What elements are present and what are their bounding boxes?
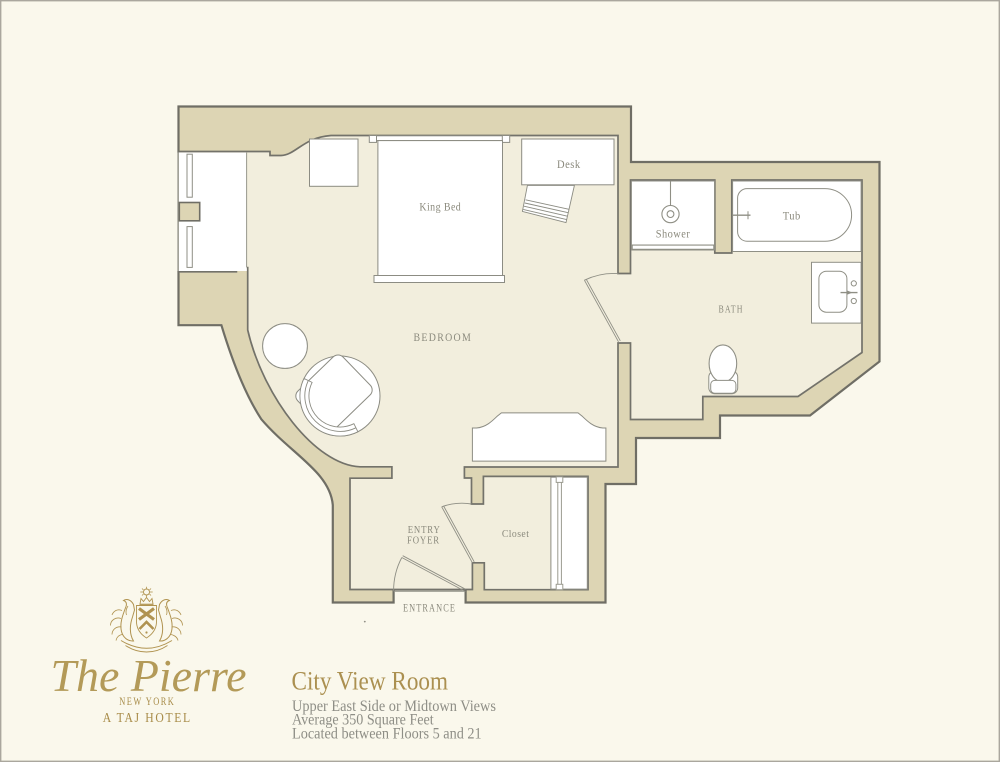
svg-text:BATH: BATH: [719, 304, 744, 316]
svg-text:King Bed: King Bed: [419, 202, 461, 214]
svg-text:Shower: Shower: [656, 228, 691, 240]
svg-text:Tub: Tub: [783, 211, 801, 223]
svg-text:ENTRY: ENTRY: [408, 525, 441, 536]
svg-text:ENTRANCE: ENTRANCE: [403, 603, 456, 615]
svg-text:FOYER: FOYER: [407, 536, 440, 547]
svg-text:A TAJ HOTEL: A TAJ HOTEL: [103, 711, 192, 726]
svg-text:Located between Floors 5 and 2: Located between Floors 5 and 21: [292, 723, 482, 742]
svg-text:Closet: Closet: [502, 528, 530, 540]
svg-text:Desk: Desk: [557, 159, 581, 171]
svg-text:City View Room: City View Room: [292, 667, 449, 696]
svg-text:NEW YORK: NEW YORK: [119, 696, 175, 708]
svg-text:BEDROOM: BEDROOM: [414, 332, 473, 344]
svg-text:The Pierre: The Pierre: [51, 651, 247, 701]
